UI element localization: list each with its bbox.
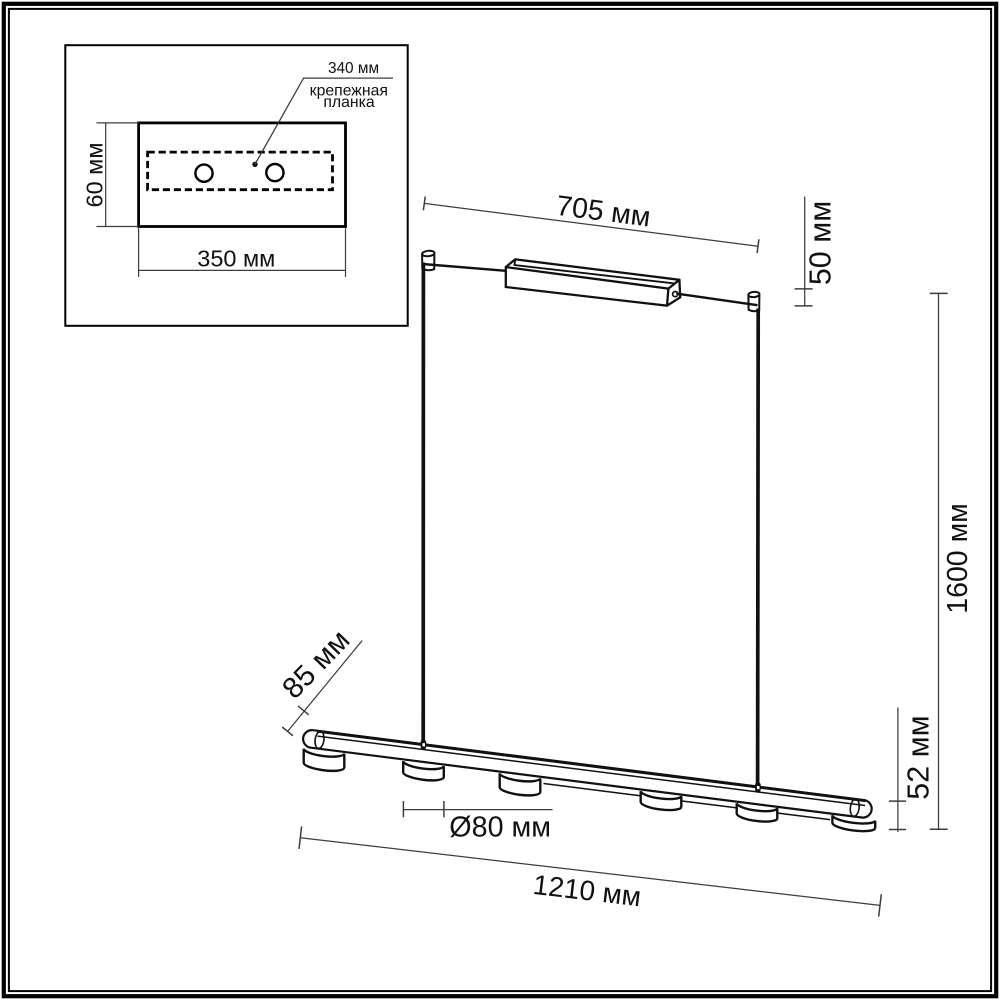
svg-text:1600 мм: 1600 мм <box>942 503 974 614</box>
svg-text:52 мм: 52 мм <box>902 715 936 799</box>
svg-text:340 мм: 340 мм <box>328 60 379 77</box>
svg-text:60 мм: 60 мм <box>81 143 107 208</box>
svg-text:планка: планка <box>323 94 375 111</box>
svg-text:50 мм: 50 мм <box>804 201 838 285</box>
svg-text:Ø80 мм: Ø80 мм <box>449 812 551 844</box>
svg-text:350 мм: 350 мм <box>197 246 275 272</box>
